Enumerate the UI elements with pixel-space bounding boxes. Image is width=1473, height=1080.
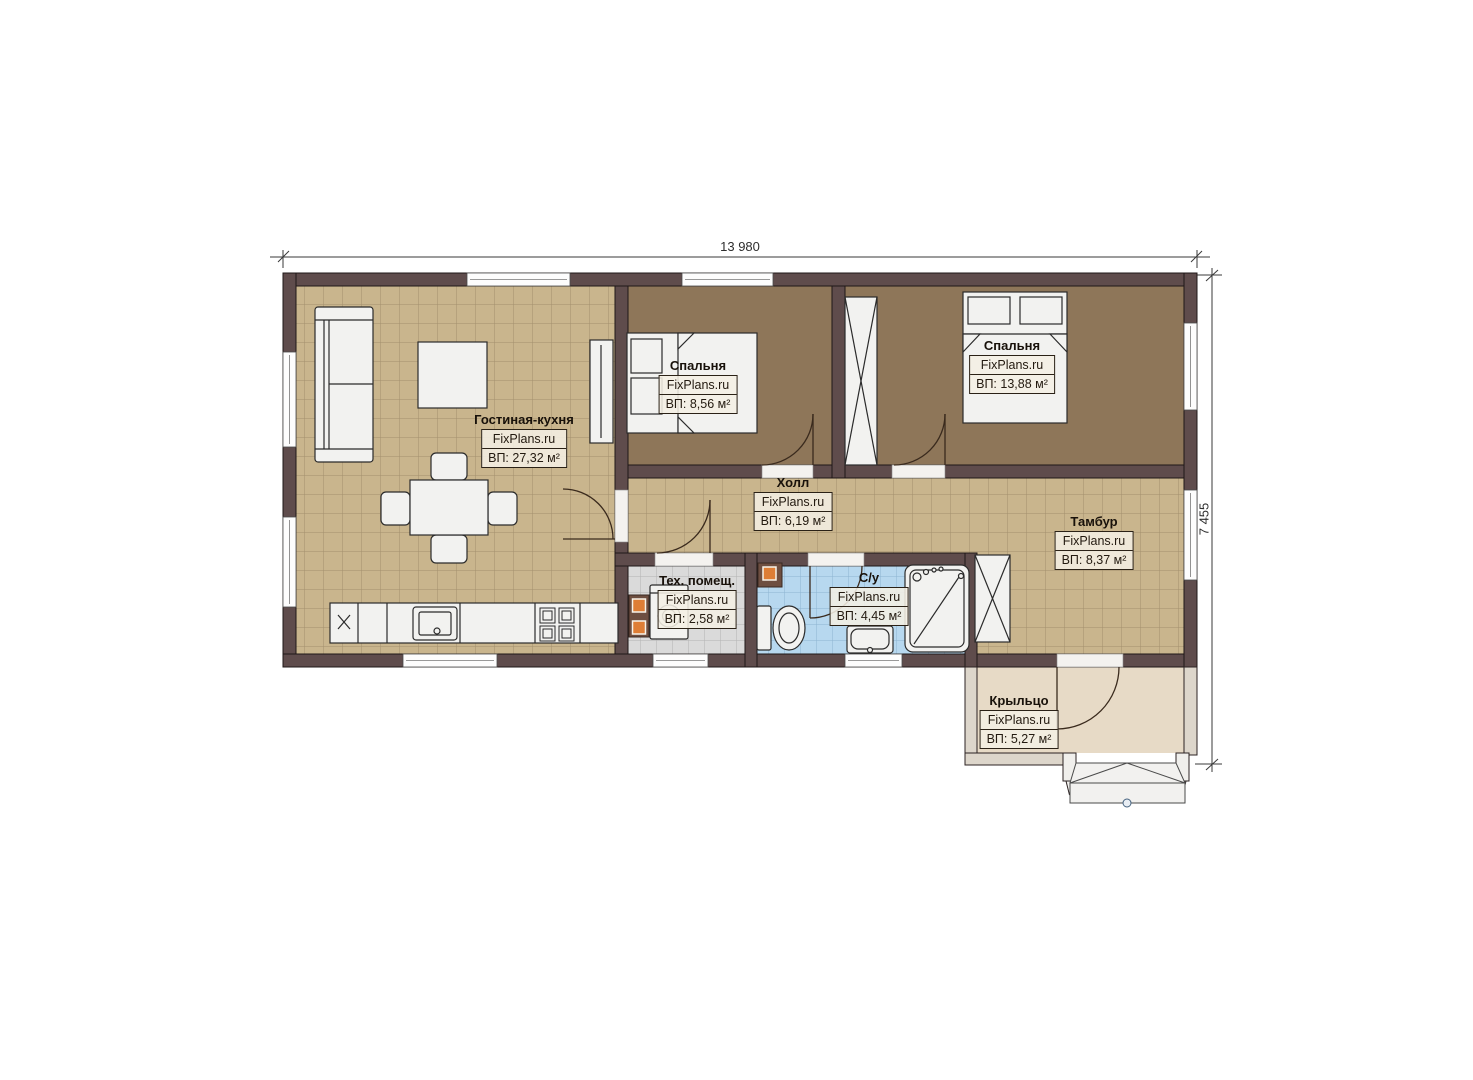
area-row: ВП: 2,58 м²	[659, 609, 736, 628]
area-row: ВП: 27,32 м²	[482, 448, 566, 467]
room-label-porch: Крыльцо FixPlans.ru ВП: 5,27 м²	[980, 693, 1059, 749]
window-top-bedroom1	[682, 273, 773, 286]
brand-row: FixPlans.ru	[755, 493, 832, 511]
area-row: ВП: 8,37 м²	[1056, 550, 1133, 569]
dimension-width-label: 13 980	[720, 239, 760, 254]
wall-bedroom-divider	[832, 286, 845, 478]
brand-row: FixPlans.ru	[970, 356, 1054, 374]
tv-cabinet-icon	[590, 340, 613, 443]
window-right-tambour	[1184, 490, 1197, 580]
brand-row: FixPlans.ru	[660, 376, 737, 394]
room-name: Тех. помещ.	[658, 573, 737, 588]
kitchen-counter-icon	[330, 603, 618, 643]
room-info-box: FixPlans.ru ВП: 27,32 м²	[481, 429, 567, 468]
room-label-living-kitchen: Гостиная-кухня FixPlans.ru ВП: 27,32 м²	[474, 412, 574, 468]
brand-row: FixPlans.ru	[659, 591, 736, 609]
room-name: Спальня	[659, 358, 738, 373]
area-row: ВП: 13,88 м²	[970, 374, 1054, 393]
area-row: ВП: 8,56 м²	[660, 394, 737, 413]
brand-row: FixPlans.ru	[981, 711, 1058, 729]
porch-steps	[1070, 763, 1185, 807]
window-left-upper	[283, 352, 296, 447]
room-label-hall: Холл FixPlans.ru ВП: 6,19 м²	[754, 475, 833, 531]
room-info-box: FixPlans.ru ВП: 8,37 м²	[1055, 531, 1134, 570]
area-row: ВП: 5,27 м²	[981, 729, 1058, 748]
room-label-bedroom-1: Спальня FixPlans.ru ВП: 8,56 м²	[659, 358, 738, 414]
floor-plan-drawing	[0, 0, 1473, 1080]
wall-living-hall	[615, 286, 628, 654]
area-row: ВП: 6,19 м²	[755, 511, 832, 530]
dimension-height-label: 7 455	[1197, 503, 1212, 536]
floor-plan: 13 980 7 455 Гостиная-кухня FixPlans.ru …	[0, 0, 1473, 1080]
boiler-unit-bath-icon	[758, 563, 782, 587]
room-name: Холл	[754, 475, 833, 490]
wall-exterior-left	[283, 273, 296, 667]
room-name: Гостиная-кухня	[474, 412, 574, 427]
kitchen-sink-icon	[413, 607, 457, 640]
brand-row: FixPlans.ru	[1056, 532, 1133, 550]
toilet-icon	[757, 606, 805, 650]
room-info-box: FixPlans.ru ВП: 4,45 м²	[830, 587, 909, 626]
wardrobe-icon-tambour	[975, 555, 1010, 642]
room-name: Спальня	[969, 338, 1055, 353]
room-info-box: FixPlans.ru ВП: 5,27 м²	[980, 710, 1059, 749]
brand-row: FixPlans.ru	[831, 588, 908, 606]
brand-row: FixPlans.ru	[482, 430, 566, 448]
room-info-box: FixPlans.ru ВП: 2,58 м²	[658, 590, 737, 629]
area-row: ВП: 4,45 м²	[831, 606, 908, 625]
shower-icon	[905, 565, 969, 652]
room-label-tech-room: Тех. помещ. FixPlans.ru ВП: 2,58 м²	[658, 573, 737, 629]
room-label-bathroom: С/у FixPlans.ru ВП: 4,45 м²	[830, 570, 909, 626]
wall-tech-bath-divider	[745, 553, 757, 667]
room-label-bedroom-2: Спальня FixPlans.ru ВП: 13,88 м²	[969, 338, 1055, 394]
room-info-box: FixPlans.ru ВП: 13,88 м²	[969, 355, 1055, 394]
window-bottom-bath	[845, 654, 902, 667]
room-name: Крыльцо	[980, 693, 1059, 708]
bath-sink-icon	[847, 626, 893, 653]
window-bottom-tech	[653, 654, 708, 667]
boiler-units-tech-icon	[629, 595, 649, 637]
room-info-box: FixPlans.ru ВП: 8,56 м²	[659, 375, 738, 414]
window-top-living	[467, 273, 570, 286]
window-right-bedroom2	[1184, 323, 1197, 410]
coffee-table-icon	[418, 342, 487, 408]
window-bottom-kitchen	[403, 654, 497, 667]
room-name: С/у	[830, 570, 909, 585]
room-name: Тамбур	[1055, 514, 1134, 529]
wardrobe-icon-bedroom2	[845, 297, 877, 465]
room-info-box: FixPlans.ru ВП: 6,19 м²	[754, 492, 833, 531]
room-label-tambour: Тамбур FixPlans.ru ВП: 8,37 м²	[1055, 514, 1134, 570]
window-left-lower	[283, 517, 296, 607]
sofa-icon	[315, 307, 373, 462]
